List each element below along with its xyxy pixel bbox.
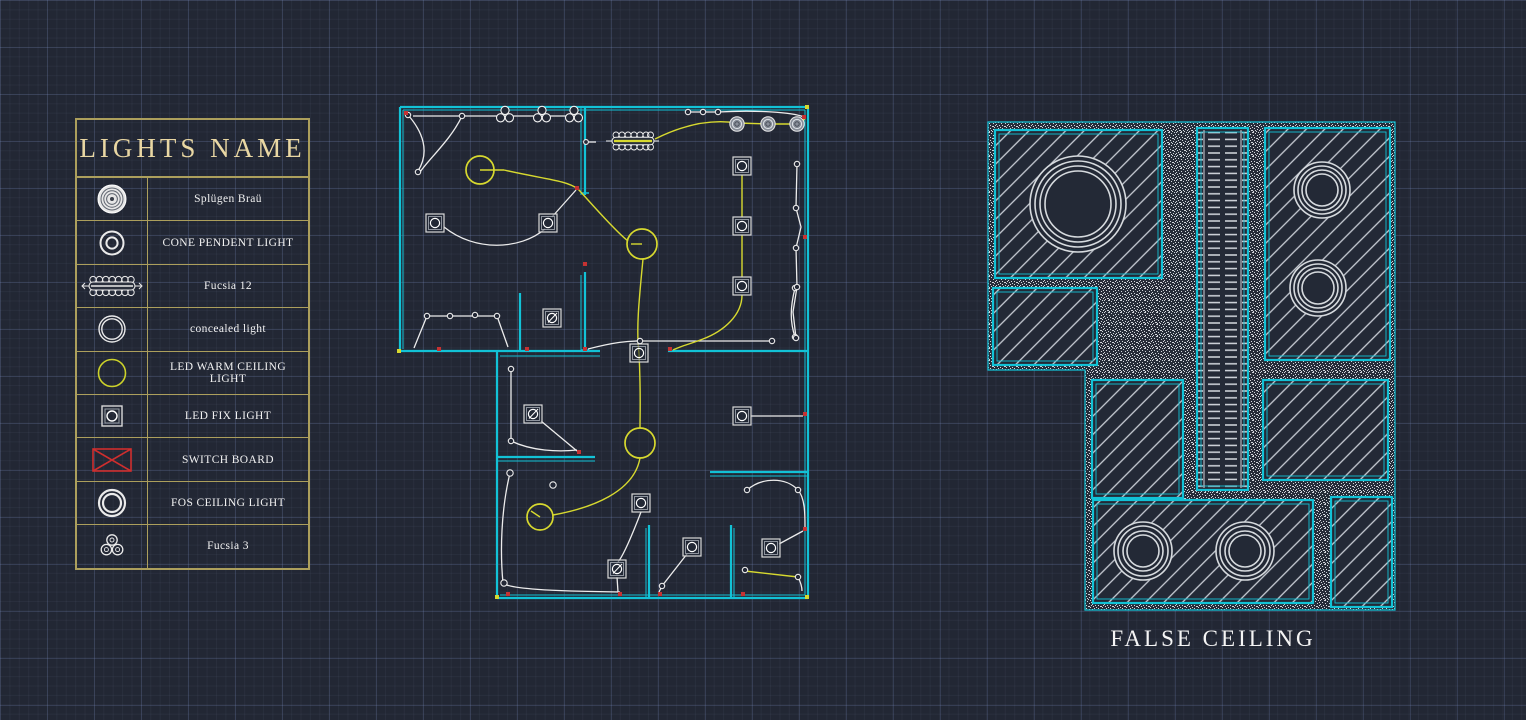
splugen-brau-icon	[77, 178, 148, 220]
ceiling-panel	[1331, 497, 1392, 607]
legend-label: Splügen Braü	[148, 178, 308, 220]
lights-legend-table[interactable]: LIGHTS NAME Splügen Braü CONE	[75, 118, 310, 570]
legend-label: concealed light	[148, 308, 308, 350]
legend-label: Fucsia 12	[148, 265, 308, 307]
ceiling-panel-cove	[1197, 128, 1248, 490]
floor-plan-canvas[interactable]	[390, 95, 820, 610]
switch-board-icon	[77, 438, 148, 480]
legend-row: FOS CEILING LIGHT	[77, 482, 308, 525]
legend-label: SWITCH BOARD	[148, 438, 308, 480]
concealed-light-icon	[77, 308, 148, 350]
led-fix-lights[interactable]	[426, 157, 780, 578]
legend-label: LED FIX LIGHT	[148, 395, 308, 437]
fos-ceiling-light-icon	[77, 482, 148, 524]
legend-label: Fucsia 3	[148, 525, 308, 567]
legend-row: Fucsia 12	[77, 265, 308, 308]
fucsia-12-light[interactable]	[606, 132, 659, 150]
cad-canvas[interactable]: LIGHTS NAME Splügen Braü CONE	[0, 0, 1526, 720]
led-fix-light-icon	[77, 395, 148, 437]
legend-row: LED FIX LIGHT	[77, 395, 308, 438]
ceiling-panel	[1265, 128, 1390, 360]
led-warm-ceiling-lights[interactable]	[466, 156, 657, 530]
legend-title: LIGHTS NAME	[77, 120, 308, 178]
ceiling-panel	[1093, 500, 1313, 603]
cone-pendent-light-icon	[77, 221, 148, 263]
false-ceiling-canvas[interactable]	[980, 112, 1400, 617]
ceiling-panel	[993, 288, 1097, 365]
fucsia-3-icon	[77, 525, 148, 567]
ceiling-panel	[995, 130, 1162, 278]
legend-row: concealed light	[77, 308, 308, 351]
legend-row: CONE PENDENT LIGHT	[77, 221, 308, 264]
legend-row: Fucsia 3	[77, 525, 308, 567]
led-warm-ceiling-light-icon	[77, 352, 148, 394]
legend-row: SWITCH BOARD	[77, 438, 308, 481]
splugen-brau-lights[interactable]	[730, 117, 804, 131]
fucsia-12-icon	[77, 265, 148, 307]
legend-label: CONE PENDENT LIGHT	[148, 221, 308, 263]
fucsia-3-lights[interactable]	[497, 106, 583, 122]
legend-label: LED WARM CEILING LIGHT	[148, 352, 308, 394]
false-ceiling-caption: FALSE CEILING	[1108, 626, 1318, 652]
ceiling-panel	[1092, 380, 1183, 498]
ceiling-panel	[1263, 380, 1388, 480]
legend-row: Splügen Braü	[77, 178, 308, 221]
legend-label: FOS CEILING LIGHT	[148, 482, 308, 524]
walls[interactable]	[400, 107, 808, 598]
legend-row: LED WARM CEILING LIGHT	[77, 352, 308, 395]
